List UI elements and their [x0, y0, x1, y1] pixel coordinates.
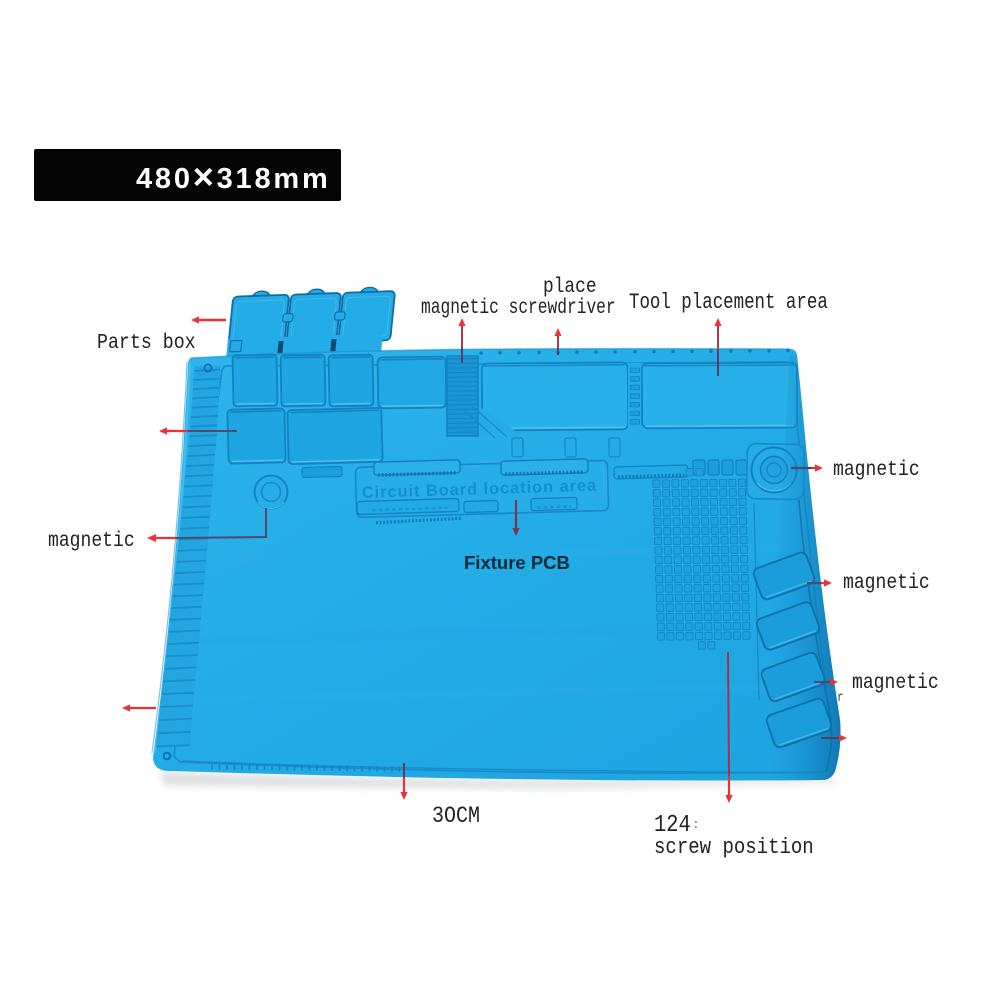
- svg-text:screw position: screw position: [654, 836, 814, 861]
- svg-text:r: r: [837, 689, 844, 706]
- svg-text:Tool placement area: Tool placement area: [629, 290, 828, 314]
- svg-text:magnetic screwdriver: magnetic screwdriver: [421, 295, 616, 320]
- svg-text:magnetic: magnetic: [48, 528, 135, 553]
- svg-text::: :: [692, 817, 700, 832]
- svg-text:magnetic: magnetic: [843, 570, 930, 595]
- svg-text:magnetic: magnetic: [852, 670, 939, 695]
- svg-text:magnetic: magnetic: [833, 457, 920, 482]
- svg-text:Fixture PCB: Fixture PCB: [464, 552, 570, 573]
- svg-text:124: 124: [654, 811, 691, 839]
- svg-text:480×318mm: 480×318mm: [136, 156, 331, 197]
- svg-text:3OCM: 3OCM: [432, 804, 480, 830]
- svg-text:Parts box: Parts box: [97, 330, 196, 355]
